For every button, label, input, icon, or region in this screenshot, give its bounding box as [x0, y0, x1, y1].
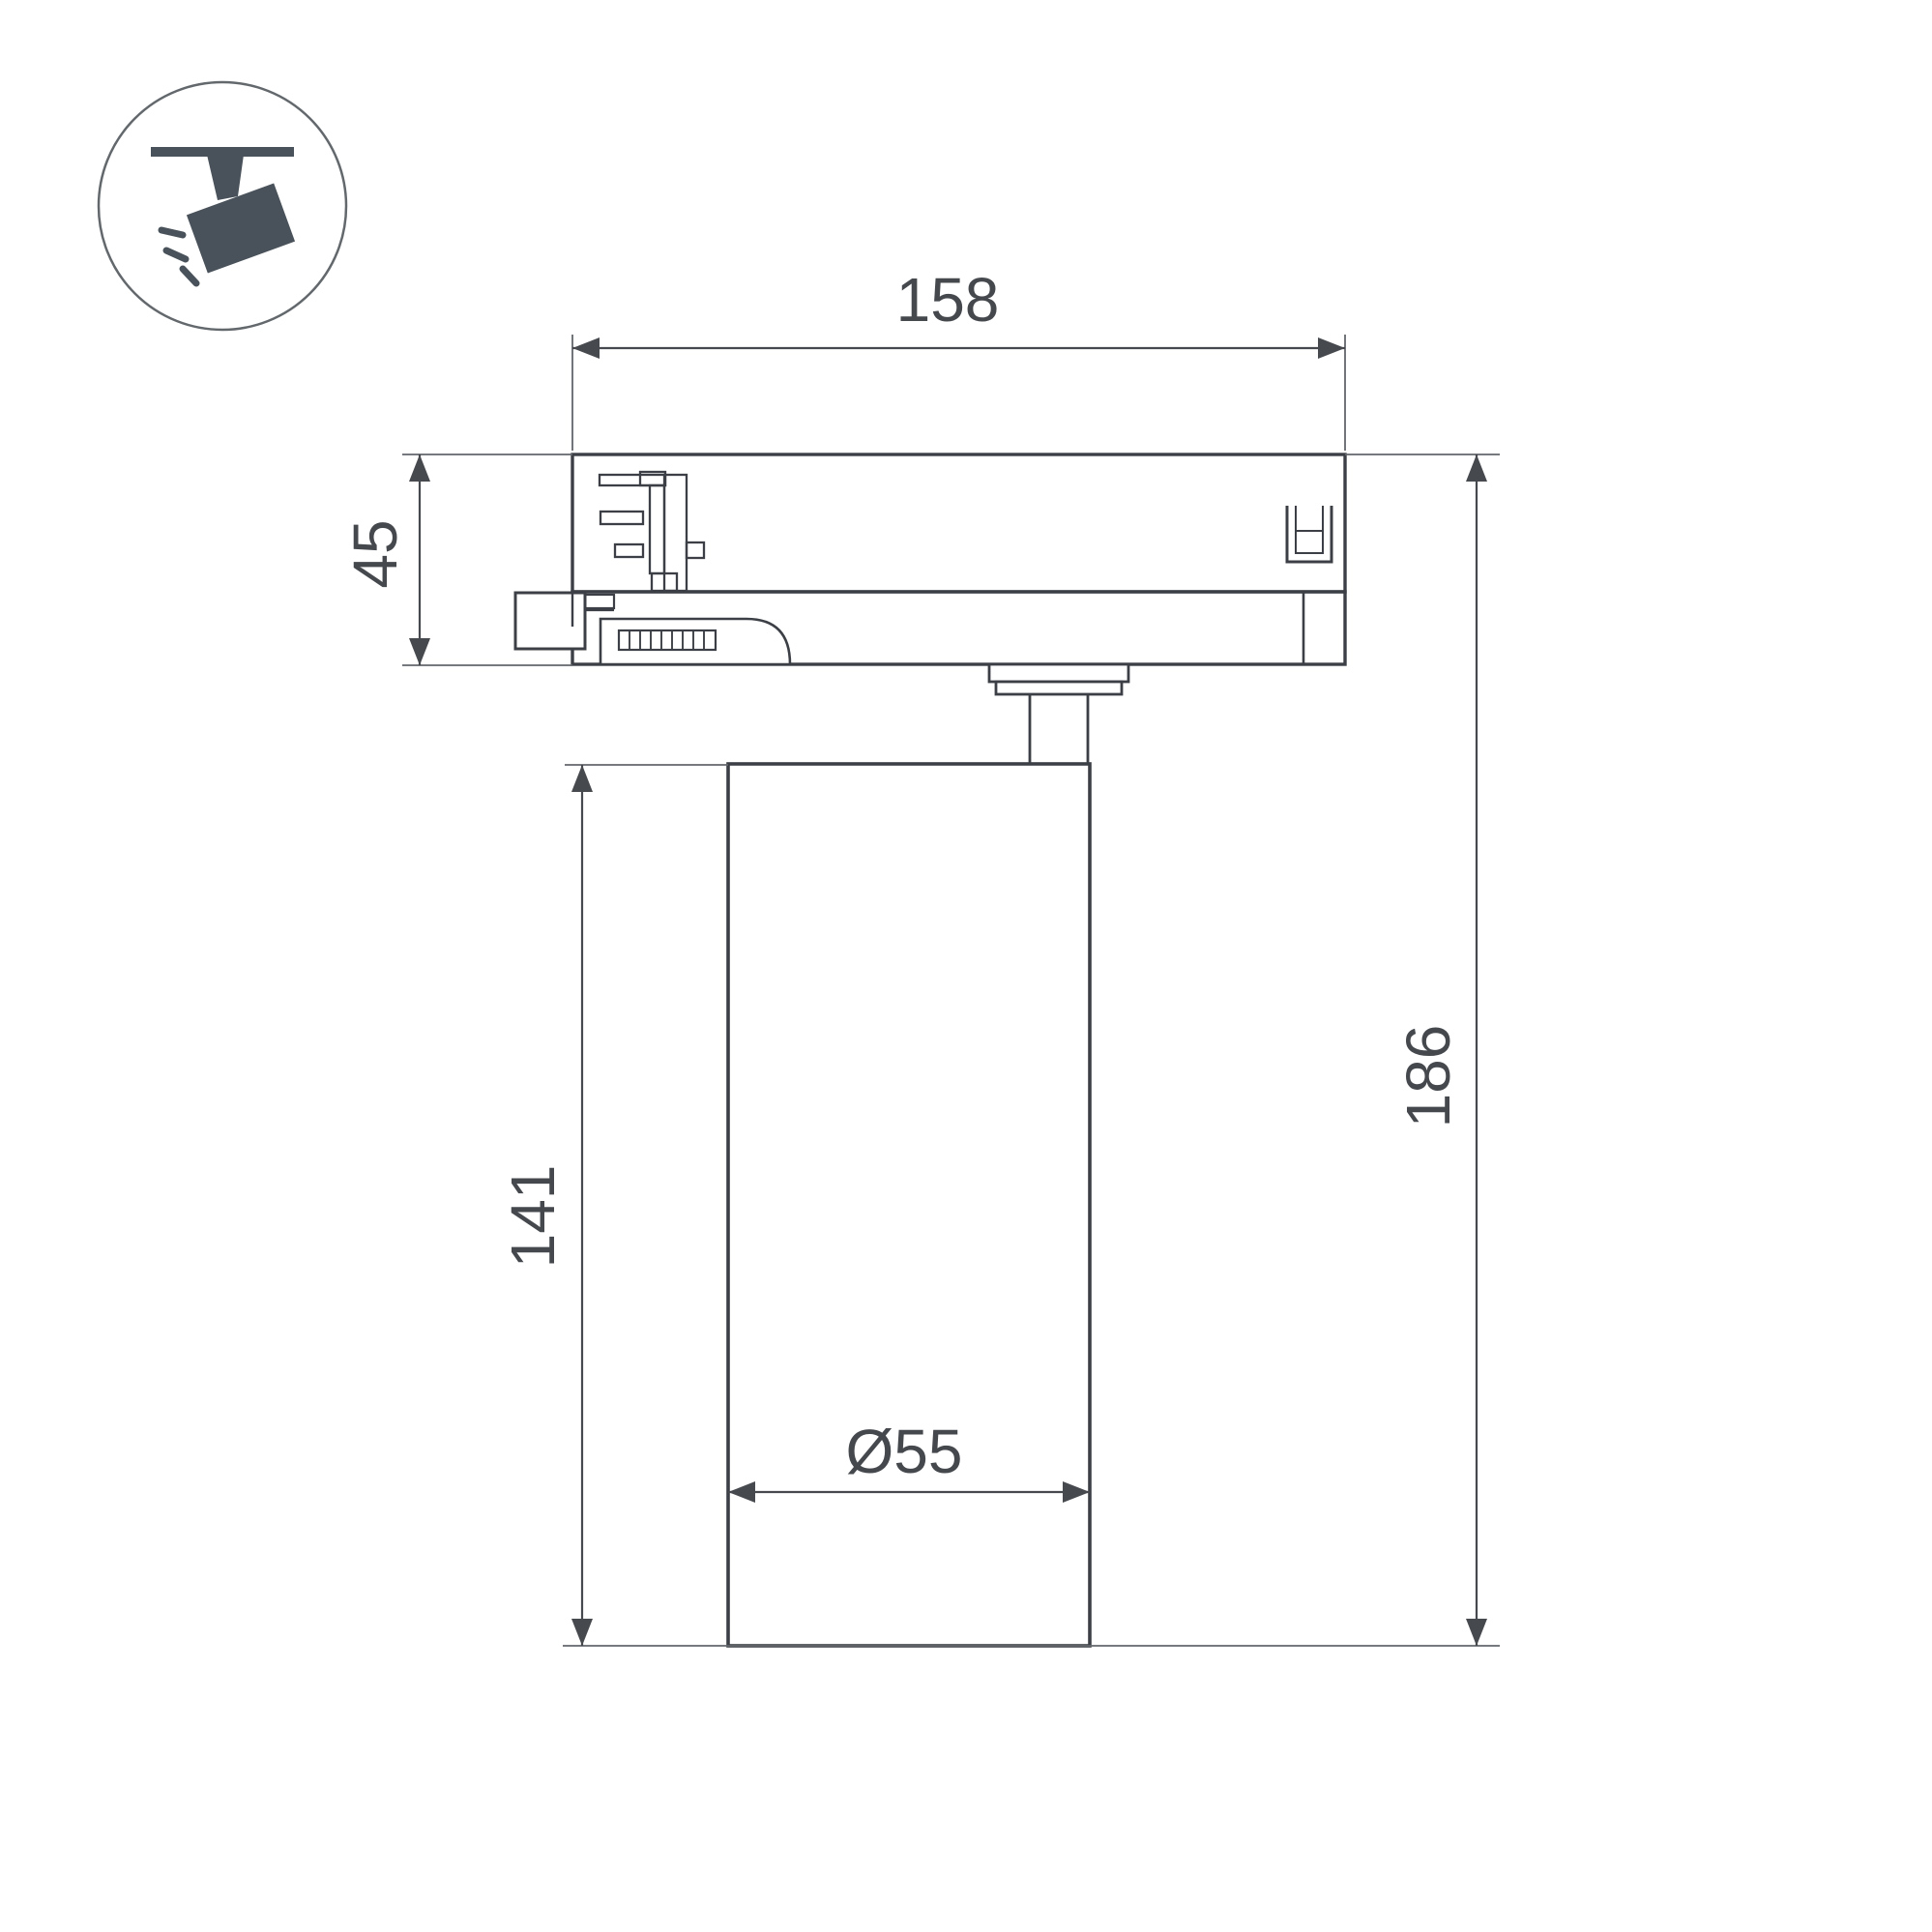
dim-label-body-height: 141 [498, 1165, 568, 1269]
arrowhead-down [1466, 1619, 1487, 1646]
track-adapter [515, 454, 1345, 664]
dim-total-height-186: 186 [1393, 454, 1487, 1646]
dim-label-adapter-height: 45 [340, 519, 410, 588]
arrowhead-left [572, 337, 600, 359]
dim-body-height-141: 141 [498, 765, 593, 1646]
dim-label-total-height: 186 [1393, 1025, 1463, 1128]
dim-adapter-height-45: 45 [340, 454, 430, 665]
arrowhead-up [571, 765, 593, 792]
dim-diameter-55: Ø55 [728, 1417, 1090, 1503]
arrowhead-up [1466, 454, 1487, 482]
adapter-upper-box [572, 454, 1345, 592]
arrowhead-up [409, 454, 430, 482]
arrowhead-down [571, 1619, 593, 1646]
arrowhead-down [409, 638, 430, 665]
adapter-ground-clip [1287, 506, 1332, 562]
arrowhead-left [728, 1481, 755, 1503]
technical-drawing-page: 158 45 141 186 Ø55 [0, 0, 1932, 1932]
arrowhead-right [1063, 1481, 1090, 1503]
adapter-latch-step [585, 595, 614, 608]
dim-label-diameter: Ø55 [846, 1417, 963, 1486]
adapter-contact-assembly [600, 472, 704, 591]
track-spotlight-icon [99, 82, 346, 330]
swivel-joint [989, 664, 1128, 764]
dimension-drawing-svg: 158 45 141 186 Ø55 [0, 0, 1932, 1932]
lamp-body-cylinder [728, 764, 1090, 1646]
dim-label-width: 158 [896, 265, 1000, 335]
arrowhead-right [1318, 337, 1345, 359]
adapter-latch-block [515, 593, 585, 649]
dim-width-158: 158 [572, 265, 1345, 359]
